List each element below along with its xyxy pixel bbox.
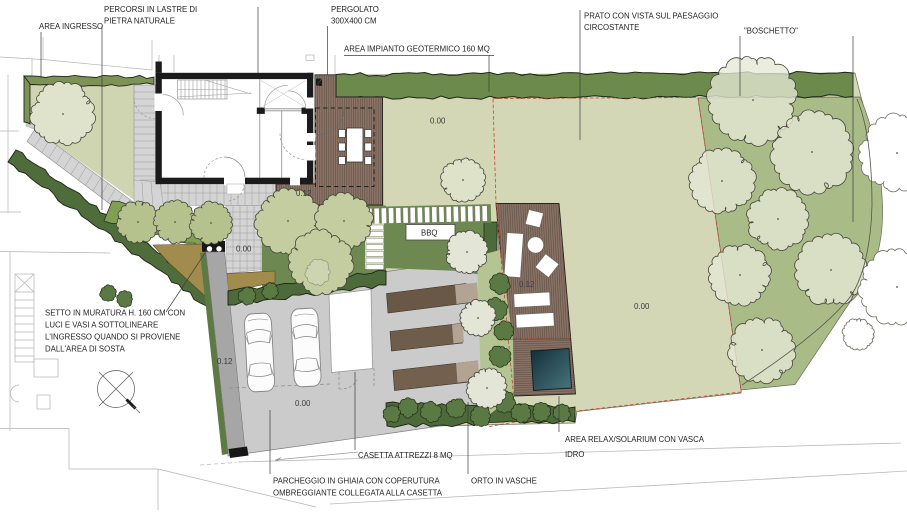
svg-text:PERGOLATO: PERGOLATO <box>331 5 379 14</box>
svg-text:IDRO: IDRO <box>565 450 585 459</box>
svg-text:PIETRA NATURALE: PIETRA NATURALE <box>104 17 175 26</box>
svg-text:300X400 CM: 300X400 CM <box>331 17 377 26</box>
svg-text:BBQ: BBQ <box>421 229 437 238</box>
svg-text:PRATO CON VISTA SUL PAESAGGIO: PRATO CON VISTA SUL PAESAGGIO <box>584 12 718 21</box>
svg-text:PERCORSI IN LASTRE DI: PERCORSI IN LASTRE DI <box>104 5 197 14</box>
svg-text:AREA RELAX/SOLARIUM CON VASCA: AREA RELAX/SOLARIUM CON VASCA <box>565 435 705 444</box>
svg-text:0.12: 0.12 <box>217 357 232 366</box>
svg-text:LUCI E VASI A SOTTOLINEARE: LUCI E VASI A SOTTOLINEARE <box>45 321 158 330</box>
svg-text:PARCHEGGIO IN GHIAIA CON COPER: PARCHEGGIO IN GHIAIA CON COPERUTURA <box>273 477 440 486</box>
svg-text:"BOSCHETTO": "BOSCHETTO" <box>744 27 798 36</box>
svg-text:L'INGRESSO QUANDO SI PROVIENE: L'INGRESSO QUANDO SI PROVIENE <box>45 333 180 342</box>
svg-text:0.00: 0.00 <box>634 302 650 311</box>
svg-text:OMBREGGIANTE COLLEGATA ALLA CA: OMBREGGIANTE COLLEGATA ALLA CASETTA <box>273 489 443 498</box>
svg-text:CASETTA ATTREZZI 8 MQ: CASETTA ATTREZZI 8 MQ <box>358 451 453 460</box>
svg-text:0.12: 0.12 <box>296 189 311 198</box>
svg-text:0.12: 0.12 <box>519 280 534 289</box>
svg-text:DALL'AREA DI SOSTA: DALL'AREA DI SOSTA <box>45 345 126 354</box>
svg-text:CIRCOSTANTE: CIRCOSTANTE <box>584 23 639 32</box>
svg-text:AREA IMPIANTO GEOTERMICO 160 M: AREA IMPIANTO GEOTERMICO 160 MQ <box>344 45 490 54</box>
svg-text:0.00: 0.00 <box>236 245 252 254</box>
svg-text:0.00: 0.00 <box>295 399 311 408</box>
svg-text:SETTO IN MURATURA H. 160 CM CO: SETTO IN MURATURA H. 160 CM CON <box>45 309 185 318</box>
svg-text:ORTO IN VASCHE: ORTO IN VASCHE <box>471 477 537 486</box>
svg-text:0.00: 0.00 <box>430 117 446 126</box>
svg-text:AREA INGRESSO: AREA INGRESSO <box>39 22 103 31</box>
